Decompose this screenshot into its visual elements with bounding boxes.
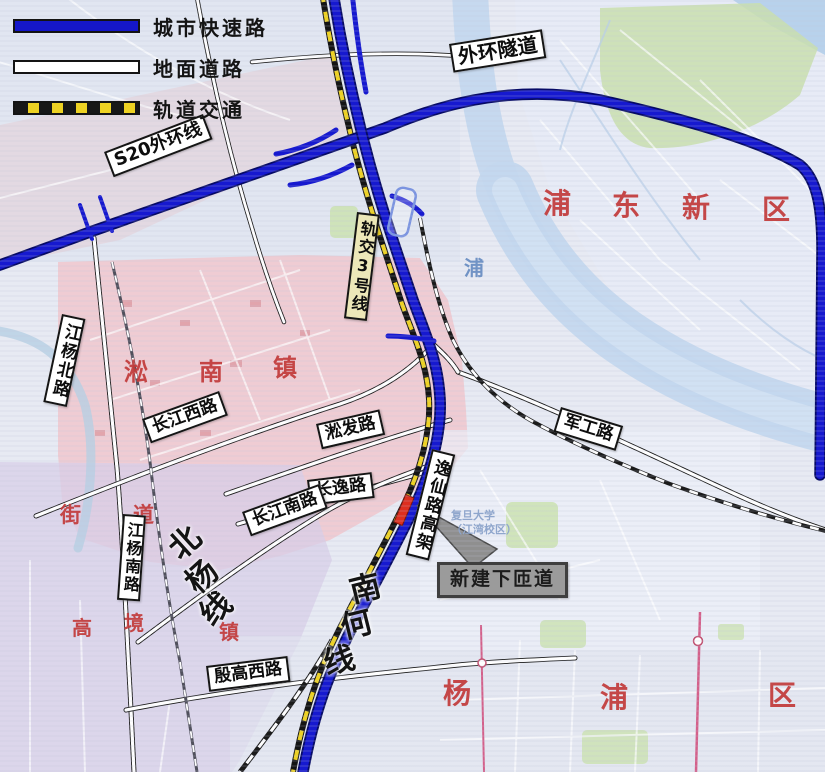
area-pudong-char: 区: [762, 196, 790, 224]
area-pudong-char: 东: [612, 192, 640, 220]
rail-transit-swatch: [13, 101, 140, 115]
area-pudong-char: 浦: [543, 190, 571, 218]
area-yangpu-char: 浦: [600, 684, 628, 712]
area-gaojing-char: 境: [124, 613, 144, 633]
surface-road-swatch: [13, 60, 140, 74]
area-gaojing-char: 高: [72, 618, 92, 638]
area-pudong-char: 新: [682, 194, 710, 222]
legend-label-surface-road: 地面道路: [153, 53, 245, 82]
legend: 城市快速路 地面道路 轨道交通: [13, 14, 268, 137]
river-name-char: 浦: [464, 252, 484, 281]
area-songnan-char: 南: [199, 360, 223, 384]
area-songnan-char: 镇: [273, 356, 297, 380]
legend-row-rail-transit: 轨道交通: [13, 96, 268, 120]
legend-label-expressway: 城市快速路: [153, 12, 268, 41]
area-yangpu-char: 区: [768, 682, 796, 710]
area-jiedao-char: 街: [60, 505, 81, 526]
fudan-line1: 复旦大学: [451, 509, 517, 523]
expressway-swatch: [13, 19, 140, 33]
legend-label-rail-transit: 轨道交通: [153, 94, 245, 123]
legend-row-surface-road: 地面道路: [13, 55, 268, 79]
area-songnan-char: 淞: [124, 360, 148, 384]
map: 城市快速路 地面道路 轨道交通 外环隧道 S20外环线 轨交3号线 江杨北路 长…: [0, 0, 825, 772]
area-yangpu-char: 杨: [443, 680, 471, 708]
legend-row-expressway: 城市快速路: [13, 14, 268, 38]
fudan-university-label: 复旦大学 （江湾校区）: [451, 509, 517, 538]
fudan-line2: （江湾校区）: [451, 523, 517, 537]
label-new-down-ramp: 新建下匝道: [437, 562, 568, 598]
